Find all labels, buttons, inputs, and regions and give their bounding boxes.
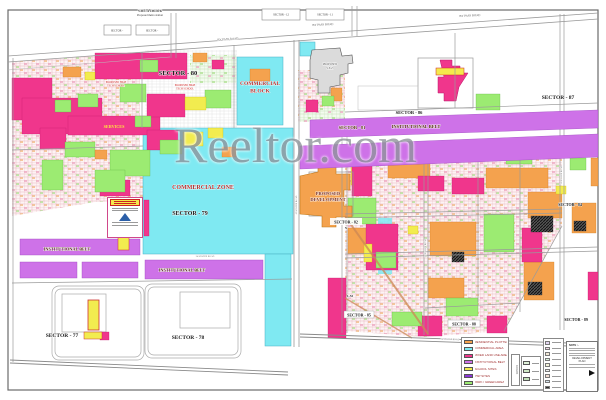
legend-row: PSP SITES (464, 374, 507, 378)
map-shape (570, 158, 586, 170)
legend-row: INSTITUTIONAL BELT (464, 360, 507, 364)
map-shape (531, 216, 553, 232)
plot-type-row (545, 386, 562, 390)
legend-road-widths (521, 356, 541, 386)
map-label: PROPOSED (316, 191, 341, 196)
map-shape (40, 128, 66, 149)
road-width-row (523, 361, 539, 365)
legend-text-line (552, 342, 561, 343)
map-shape (328, 278, 346, 338)
plot-type-row (545, 374, 562, 378)
legend-label: COMMERCIAL AREA (475, 347, 504, 350)
map-label: SECTOR - 87 (542, 95, 575, 101)
titleblock-note: NOTE :- (569, 344, 595, 347)
legend-row: COMMERCIAL AREA (464, 347, 507, 351)
map-label: SECTOR - 86 (396, 110, 423, 115)
map-shape (95, 150, 107, 159)
map-label: INSTITUTIONAL BELT (392, 124, 441, 129)
legend-text-line (552, 381, 561, 382)
map-shape (82, 262, 138, 278)
map-shape (20, 262, 77, 278)
map-label: TECH SCHOOL (176, 88, 194, 91)
plot-type-row (545, 369, 562, 373)
map-shape (78, 94, 98, 107)
map-shape (446, 298, 478, 316)
road-width-swatch (523, 377, 530, 381)
map-label: SECTOR - (111, 30, 123, 33)
map-label: SECTOR - 12 (273, 14, 289, 17)
ad-title-banner (110, 199, 141, 206)
map-shape (588, 272, 598, 300)
ad-text-line (112, 225, 138, 226)
legend-label: MIXED LAND USE AREA (475, 354, 508, 357)
plot-type-swatch (545, 369, 550, 373)
plot-type-swatch (545, 341, 550, 345)
map-shape (528, 192, 562, 218)
highrise-tower (88, 300, 99, 330)
map-label: TECH SCHOOL (107, 85, 125, 88)
map-shape (591, 158, 598, 186)
map-shape (95, 170, 125, 192)
map-shape (556, 186, 566, 194)
legend-label: RESIDENTIAL PLOTTED AREA (475, 341, 508, 344)
titleblock-title: DEVELOPMENT PLAN (569, 357, 595, 363)
map-shape (55, 100, 71, 112)
map-shape (63, 67, 81, 77)
ad-text-line (112, 222, 138, 223)
legend-swatch (464, 360, 473, 364)
map-label: SECTOR - (146, 30, 158, 33)
map-label: SECTOR - 81 (339, 125, 366, 130)
map-label: SECTOR - 82 (334, 220, 358, 225)
legend-text-line (552, 353, 561, 354)
plot-type-swatch (545, 347, 550, 351)
map-label: SECTOR - 11 (317, 14, 333, 17)
map-shape (428, 278, 464, 298)
road-width-swatch (523, 361, 530, 365)
map-label: COMMERCIAL (240, 81, 280, 87)
map-label: SERVICES (104, 124, 125, 129)
plot-type-row (545, 341, 562, 345)
map-shape (486, 168, 548, 188)
legend-label: PSP SITES (475, 375, 490, 378)
map-label: DEVELOPMENT (310, 197, 345, 202)
map-shape (144, 200, 149, 236)
legend-text-line (552, 376, 561, 377)
map-shape (118, 236, 129, 250)
map-label: 24 M WIDE ROAD (196, 255, 215, 258)
legend-row: MIXED LAND USE AREA (464, 354, 507, 358)
map-shape (185, 97, 206, 110)
map-label: L.M (347, 294, 353, 298)
legend-text-line (552, 348, 561, 349)
map-label: INSTITUTIONAL BELT (159, 268, 206, 273)
road-width-row (523, 377, 539, 381)
map-shape (418, 176, 444, 191)
project-banner (436, 68, 464, 75)
legend-roads-title: ROADS (511, 354, 520, 386)
legend-swatch (464, 354, 473, 358)
plot-type-swatch (545, 374, 550, 378)
legend-label: INSTITUTIONAL BELT (475, 361, 506, 364)
map-label: SECTOR - 84 (558, 202, 582, 207)
map-label: 30 M WIDE ROAD (560, 165, 563, 184)
map-shape (135, 116, 151, 127)
map-shape (322, 96, 334, 106)
map-shape (84, 332, 102, 339)
map-label: SECTOR - 88 (452, 322, 476, 327)
map-shape (476, 94, 500, 110)
map-shape (306, 100, 318, 112)
map-label: SECTOR - 85 (347, 313, 371, 318)
map-label: SECTOR - 79 (172, 211, 208, 217)
map-shape (42, 160, 63, 190)
titleblock-text-line (569, 348, 595, 349)
map-shape (140, 60, 158, 72)
titleblock-text-line (569, 353, 595, 354)
map-shape (160, 140, 182, 154)
map-label: 45 M WIDE ROAD (295, 195, 298, 214)
legend-row: PARK / GREEN AREA (464, 381, 507, 385)
legend-plot-types (543, 338, 564, 392)
sector-map: Y.M.C.A CHOWKProposed metro stationSECTO… (0, 0, 606, 400)
map-label: PROPOSED (323, 63, 337, 66)
legend-swatch (464, 374, 473, 378)
map-shape (193, 53, 207, 62)
map-shape (183, 132, 203, 146)
legend-swatch (464, 347, 473, 351)
map-label: Proposed metro station (137, 14, 163, 17)
map-shape (452, 178, 484, 194)
map-label: SECTOR - 77 (46, 333, 79, 339)
map-shape (522, 228, 542, 262)
north-arrow-icon (589, 370, 595, 376)
ad-text-line (112, 208, 138, 209)
map-shape (574, 221, 586, 231)
legend-swatch (464, 367, 473, 371)
map-label: SECTOR - 78 (172, 335, 205, 341)
map-label: SECTOR - 89 (564, 317, 588, 322)
map-label: COMMERCIAL ZONE (172, 185, 234, 191)
map-shape (212, 60, 224, 69)
plot-type-swatch (545, 380, 550, 384)
legend-text-line (552, 387, 561, 388)
titleblock-text-line (569, 367, 595, 368)
legend-swatch (464, 381, 473, 385)
map-label: Y.M.C.A CHOWK (138, 9, 163, 13)
map-shape (250, 69, 270, 81)
legend-swatch (464, 340, 473, 344)
map-shape (408, 226, 418, 234)
legend-text-line (532, 363, 540, 364)
map-shape (85, 72, 95, 80)
map-shape (222, 147, 236, 157)
map-canvas: Y.M.C.A CHOWKProposed metro stationSECTO… (0, 0, 606, 400)
legend-row: RESIDENTIAL PLOTTED AREA (464, 340, 507, 344)
map-label: INSTITUTIONAL BELT (44, 247, 91, 252)
map-label: S.E.Z. (326, 67, 333, 70)
plot-type-row (545, 380, 562, 384)
road-width-row (523, 369, 539, 373)
titleblock-text-line (569, 350, 595, 351)
legend-text-line (532, 379, 540, 380)
map-label: BLOCK (250, 89, 271, 95)
legend-text-line (552, 365, 561, 366)
ad-text-line (112, 210, 138, 211)
map-shape (484, 214, 514, 252)
plot-type-swatch (545, 358, 550, 362)
map-shape (205, 90, 231, 108)
map-shape (65, 142, 95, 157)
legend-label: SCHOOL SITES (475, 368, 497, 371)
title-block: NOTE :- DEVELOPMENT PLAN (566, 341, 598, 392)
plot-type-row (545, 358, 562, 362)
map-label: SECTOR - 80 (159, 70, 198, 77)
plot-type-row (545, 347, 562, 351)
titleblock-text-line (569, 364, 595, 365)
legend-text-line (552, 370, 561, 371)
plot-type-swatch (545, 386, 550, 390)
map-shape (452, 252, 464, 262)
legend-landuse: RESIDENTIAL PLOTTED AREACOMMERCIAL AREAM… (461, 337, 509, 387)
map-shape (147, 94, 185, 117)
plot-type-row (545, 363, 562, 367)
project-ad-card (107, 197, 143, 238)
legend-row: SCHOOL SITES (464, 367, 507, 371)
road-width-swatch (523, 369, 530, 373)
map-label: 24 M WIDE ROAD (424, 238, 427, 257)
builder-logo-icon (119, 213, 131, 221)
titleblock-text-line (569, 355, 595, 356)
plot-type-swatch (545, 363, 550, 367)
legend-text-line (532, 371, 540, 372)
map-shape (208, 128, 223, 138)
legend-label: PARK / GREEN AREA (475, 381, 505, 384)
map-shape (265, 254, 291, 346)
legend-text-line (552, 359, 561, 360)
plot-type-row (545, 352, 562, 356)
plot-type-swatch (545, 352, 550, 356)
